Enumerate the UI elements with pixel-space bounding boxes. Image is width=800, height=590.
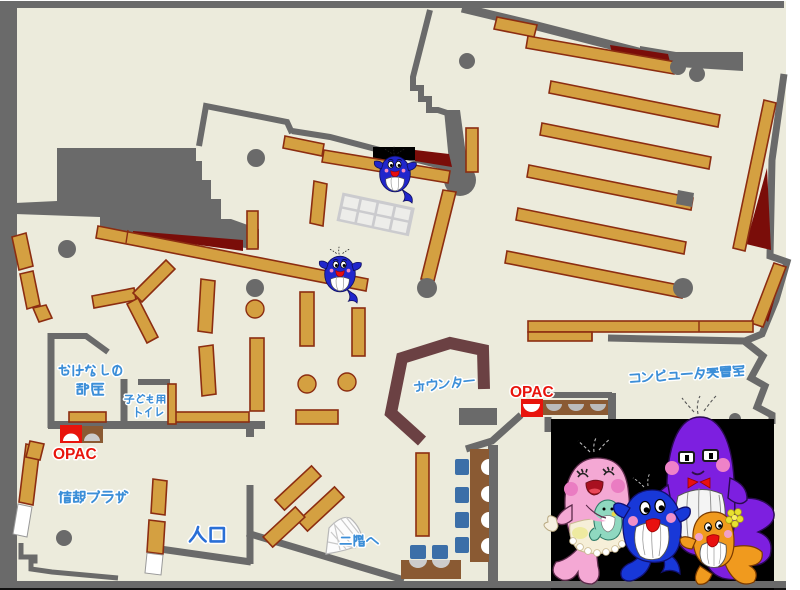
svg-text:OPAC: OPAC [510,384,554,401]
svg-text:OPAC: OPAC [53,446,97,463]
